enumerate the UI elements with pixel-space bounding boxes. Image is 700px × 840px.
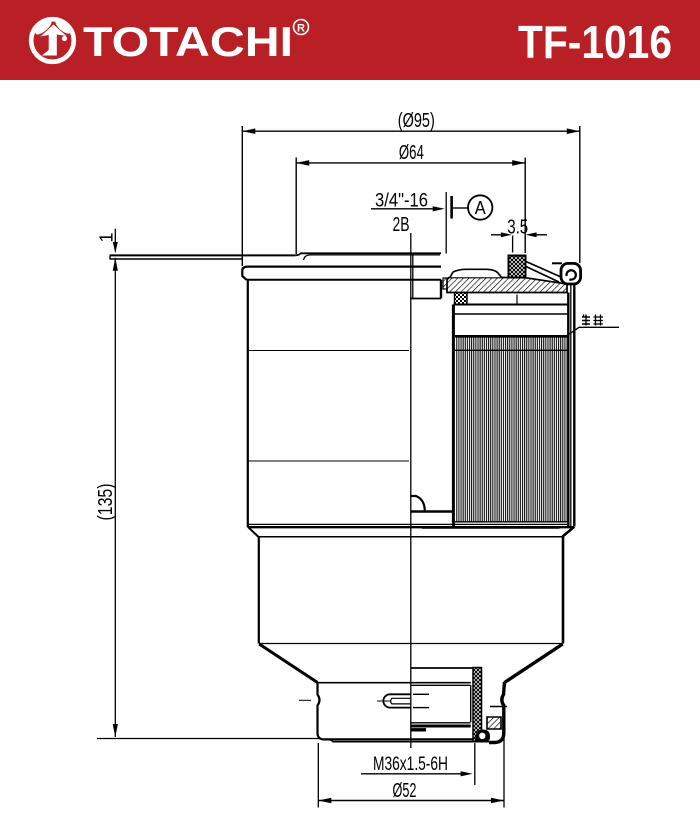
svg-text:2B: 2B (393, 214, 410, 236)
svg-text:R: R (297, 23, 305, 35)
svg-text:3.5: 3.5 (507, 217, 528, 239)
svg-text:TF-1016: TF-1016 (518, 16, 672, 68)
svg-text:1: 1 (97, 232, 117, 242)
svg-text:(Ø95): (Ø95) (398, 110, 435, 132)
svg-text:A: A (475, 198, 486, 218)
svg-text:TOTACHI: TOTACHI (83, 18, 293, 65)
svg-text:(135): (135) (95, 484, 117, 521)
svg-text:M36x1.5-6H: M36x1.5-6H (373, 754, 448, 775)
svg-text:Ø64: Ø64 (399, 142, 424, 164)
svg-text:Ø52: Ø52 (393, 780, 417, 802)
